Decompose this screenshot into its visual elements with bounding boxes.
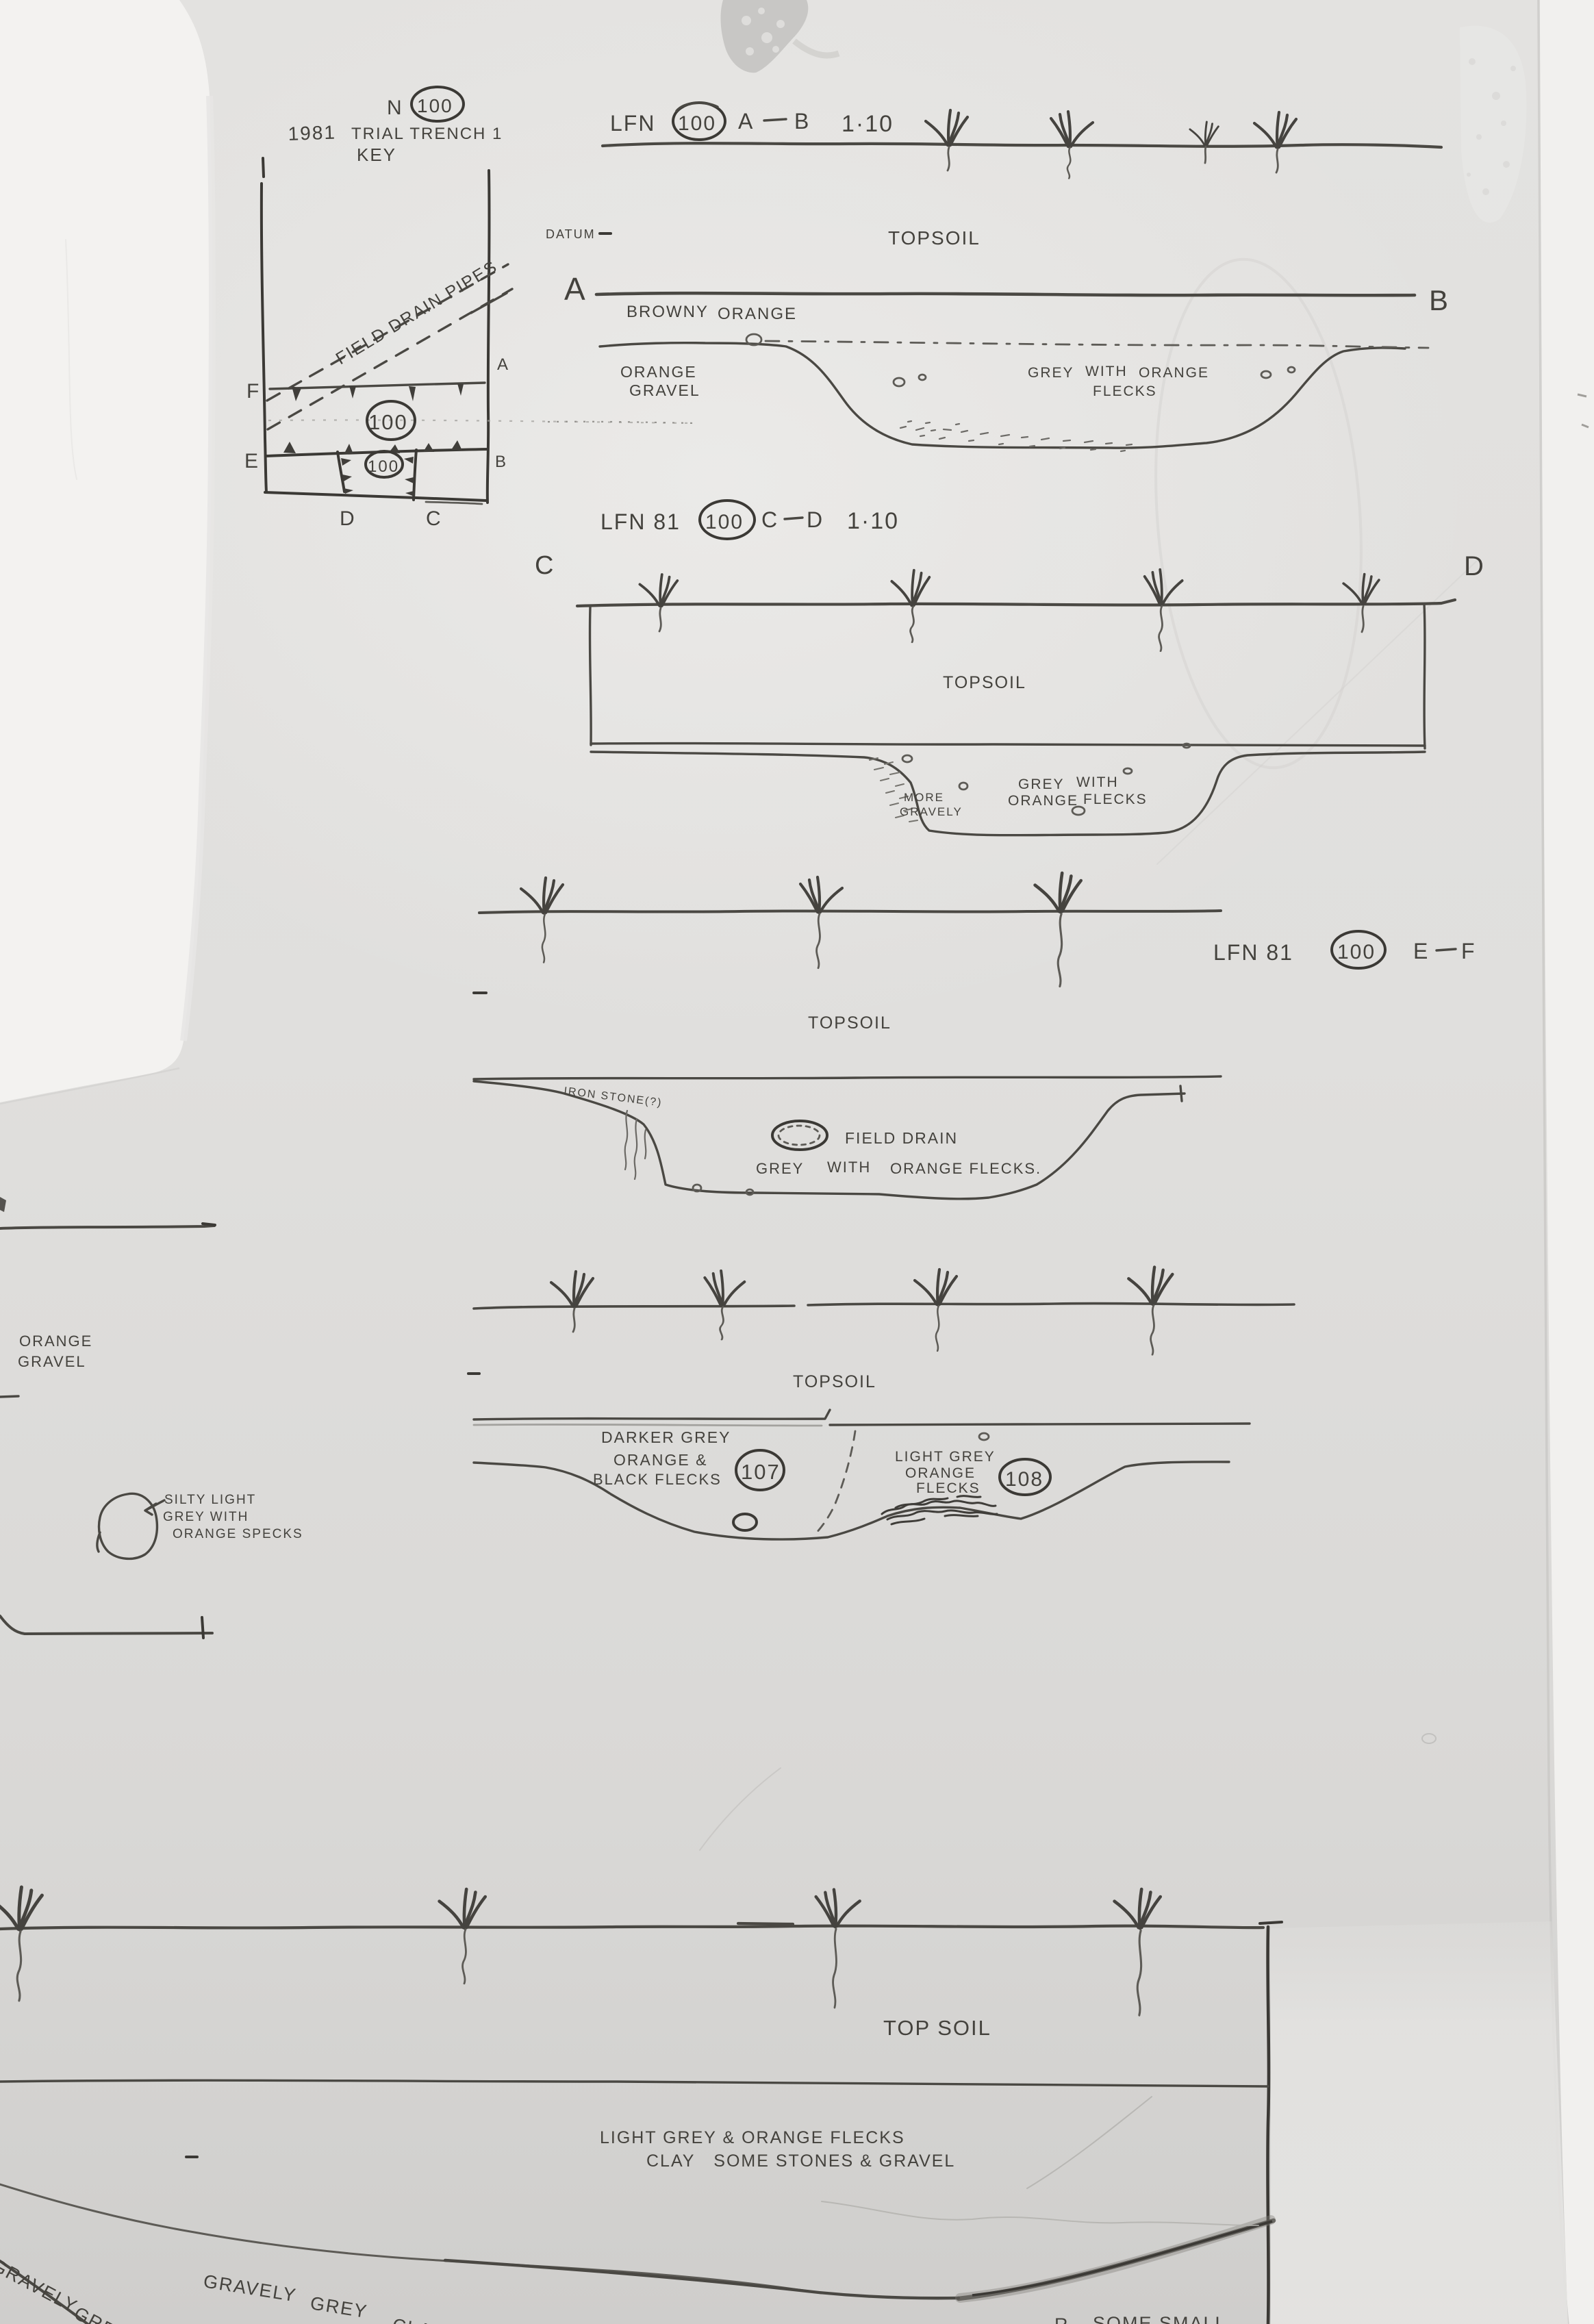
svg-text:D: D: [340, 507, 356, 530]
svg-text:TOPSOIL: TOPSOIL: [808, 1013, 891, 1033]
svg-text:ORANGE SPECKS: ORANGE SPECKS: [173, 1527, 303, 1541]
svg-text:TRIAL TRENCH 1: TRIAL TRENCH 1: [351, 125, 503, 143]
svg-text:LIGHT GREY: LIGHT GREY: [895, 1449, 996, 1465]
svg-text:LIGHT GREY & ORANGE FLECKS: LIGHT GREY & ORANGE FLECKS: [600, 2128, 905, 2147]
svg-text:TOPSOIL: TOPSOIL: [888, 227, 981, 249]
svg-text:ORANGE: ORANGE: [1008, 793, 1078, 809]
svg-text:TOPSOIL: TOPSOIL: [793, 1372, 876, 1391]
svg-text:SOME SMALL: SOME SMALL: [1093, 2313, 1227, 2324]
svg-text:C: C: [761, 507, 779, 532]
svg-text:FLECKS: FLECKS: [1093, 383, 1157, 399]
svg-text:100: 100: [368, 410, 408, 434]
svg-text:GREY: GREY: [756, 1160, 804, 1177]
svg-text:WITH: WITH: [827, 1159, 871, 1176]
svg-text:BLACK FLECKS: BLACK FLECKS: [593, 1471, 722, 1488]
svg-text:WITH: WITH: [1076, 774, 1119, 790]
svg-text:A: A: [497, 355, 509, 374]
svg-text:F: F: [1461, 939, 1476, 963]
svg-text:B: B: [794, 109, 810, 134]
svg-text:108: 108: [1005, 1468, 1043, 1491]
svg-text:E: E: [244, 450, 260, 472]
svg-text:C: C: [535, 551, 555, 580]
svg-text:ORANGE: ORANGE: [19, 1332, 92, 1350]
svg-text:B: B: [1429, 284, 1450, 316]
svg-text:GREY: GREY: [1018, 776, 1065, 792]
svg-text:GRAVELY: GRAVELY: [900, 805, 963, 818]
svg-text:GRAVEL: GRAVEL: [18, 1353, 86, 1370]
svg-text:KEY: KEY: [357, 144, 396, 165]
svg-text:E: E: [1413, 939, 1429, 963]
svg-text:R.: R.: [1054, 2314, 1076, 2324]
svg-text:WITH: WITH: [1085, 364, 1128, 379]
svg-text:A: A: [564, 271, 587, 307]
svg-text:ORANGE: ORANGE: [905, 1465, 976, 1481]
svg-text:F: F: [246, 380, 260, 403]
svg-text:FLECKS: FLECKS: [916, 1480, 981, 1496]
svg-text:C: C: [426, 507, 442, 530]
svg-text:GRAVEL: GRAVEL: [629, 381, 700, 399]
svg-text:ORANGE: ORANGE: [718, 305, 797, 323]
svg-text:SILTY LIGHT: SILTY LIGHT: [164, 1493, 256, 1507]
svg-text:GREY WITH: GREY WITH: [163, 1510, 249, 1524]
svg-text:DATUM: DATUM: [546, 227, 596, 241]
svg-text:A: A: [738, 109, 754, 134]
svg-text:1981: 1981: [288, 122, 336, 144]
svg-text:FIELD DRAIN: FIELD DRAIN: [845, 1129, 958, 1147]
svg-text:ORANGE &: ORANGE &: [613, 1451, 707, 1469]
svg-text:B: B: [495, 453, 507, 471]
svg-text:LFN: LFN: [610, 111, 655, 136]
svg-text:100: 100: [368, 457, 399, 476]
svg-text:100: 100: [417, 95, 453, 116]
svg-text:DARKER GREY: DARKER GREY: [601, 1428, 731, 1446]
svg-text:ORANGE: ORANGE: [620, 363, 697, 381]
svg-text:100: 100: [705, 511, 744, 533]
svg-text:FLECKS: FLECKS: [1083, 792, 1148, 807]
svg-text:1·10: 1·10: [842, 111, 894, 137]
svg-text:MORE: MORE: [904, 791, 944, 804]
svg-text:1·10: 1·10: [847, 508, 899, 534]
svg-text:LFN 81: LFN 81: [600, 509, 681, 534]
svg-text:ORANGE: ORANGE: [1139, 365, 1209, 381]
svg-text:GREY: GREY: [1028, 365, 1074, 381]
svg-text:ORANGE FLECKS.: ORANGE FLECKS.: [890, 1160, 1041, 1177]
svg-text:TOPSOIL: TOPSOIL: [943, 673, 1026, 692]
svg-text:N: N: [387, 97, 403, 119]
svg-text:BROWNY: BROWNY: [627, 303, 709, 321]
svg-text:100: 100: [678, 112, 716, 135]
svg-text:D: D: [1464, 551, 1485, 581]
svg-text:D: D: [807, 507, 824, 532]
svg-text:107: 107: [741, 1460, 781, 1484]
svg-text:CLAY SOME STONES & GRAVEL: CLAY SOME STONES & GRAVEL: [646, 2151, 955, 2171]
svg-text:TOP SOIL: TOP SOIL: [883, 2016, 991, 2040]
svg-text:LFN 81: LFN 81: [1213, 940, 1293, 965]
svg-text:100: 100: [1337, 941, 1376, 963]
